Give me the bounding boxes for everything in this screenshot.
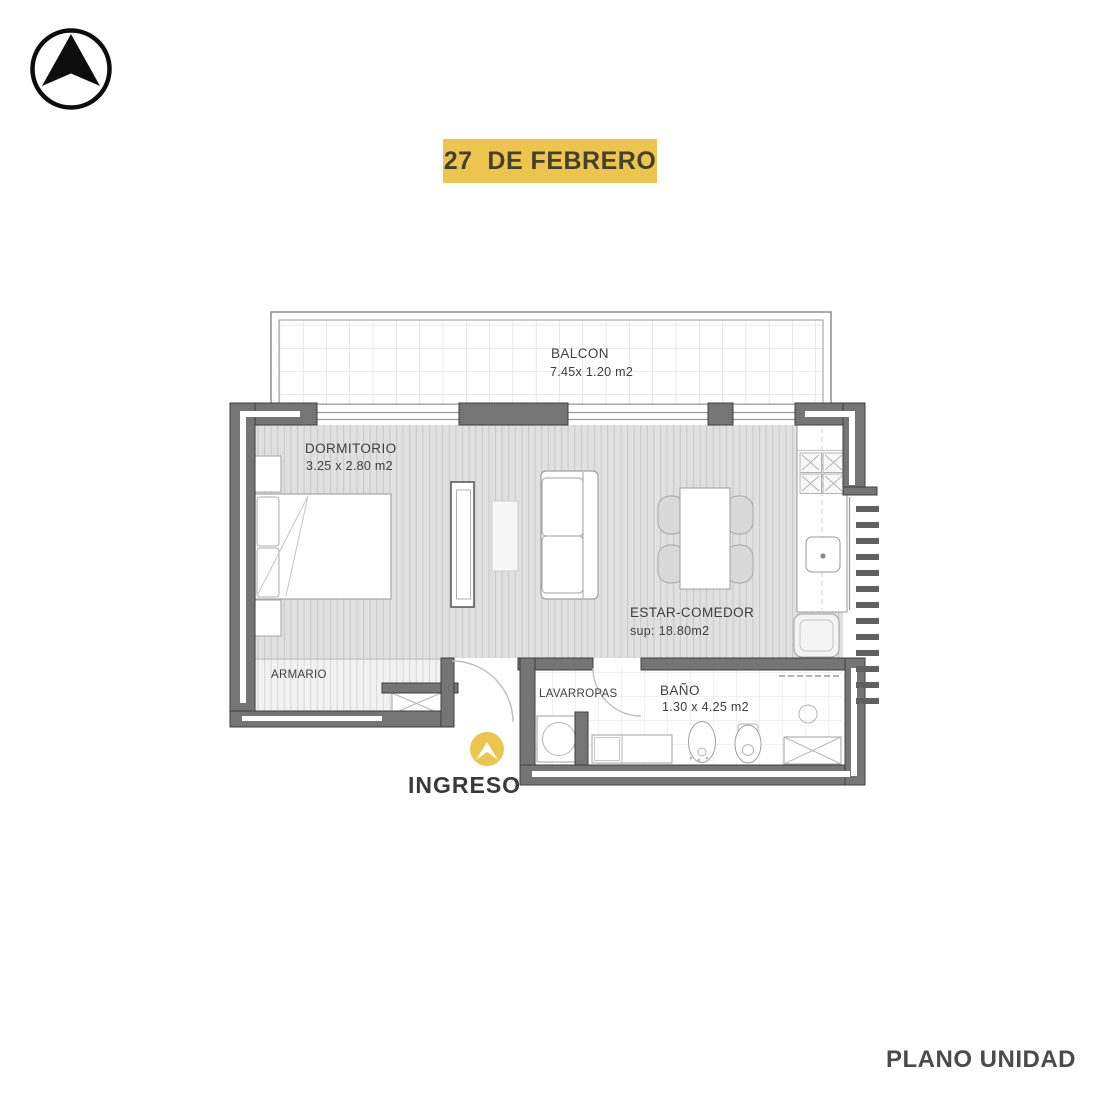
room-label-armario: ARMARIO — [271, 669, 327, 681]
kitchen — [794, 425, 847, 657]
pillow — [257, 497, 279, 546]
bidet — [689, 722, 716, 763]
room-dims-dormitorio: 3.25 x 2.80 m2 — [306, 459, 393, 473]
room-label-bano: BAÑO — [660, 683, 700, 698]
vanity — [592, 735, 672, 763]
room-label-estar-comedor: ESTAR-COMEDOR — [630, 605, 754, 620]
room-dims-bano: 1.30 x 4.25 m2 — [662, 700, 749, 714]
shower-tray — [784, 737, 841, 764]
room-label-ingreso: INGRESO — [408, 772, 521, 798]
floor-plan: BALCON 7.45x 1.20 m2 DORMITORIO 3.25 x 2… — [0, 0, 1100, 1100]
room-label-dormitorio: DORMITORIO — [305, 441, 397, 456]
window-pier — [708, 403, 733, 425]
room-label-balcon: BALCON — [551, 346, 609, 361]
entry-door-arc — [452, 661, 513, 722]
window-pier — [459, 403, 568, 425]
sink-faucet — [820, 553, 825, 558]
plan-caption: PLANO UNIDAD — [886, 1046, 1086, 1074]
nightstand — [255, 456, 281, 492]
nightstand — [255, 600, 281, 636]
balcony-tile-grid — [279, 320, 823, 404]
room-label-lavarropas: LAVARROPAS — [539, 688, 617, 700]
ingreso-marker — [470, 732, 504, 766]
sofa — [541, 471, 598, 599]
room-dims-estar-comedor: sup: 18.80m2 — [630, 624, 709, 638]
dining-table — [680, 488, 730, 589]
toilet — [735, 724, 761, 763]
washing-machine — [537, 716, 581, 762]
side-table — [492, 501, 518, 571]
room-dims-balcon: 7.45x 1.20 m2 — [550, 365, 633, 379]
